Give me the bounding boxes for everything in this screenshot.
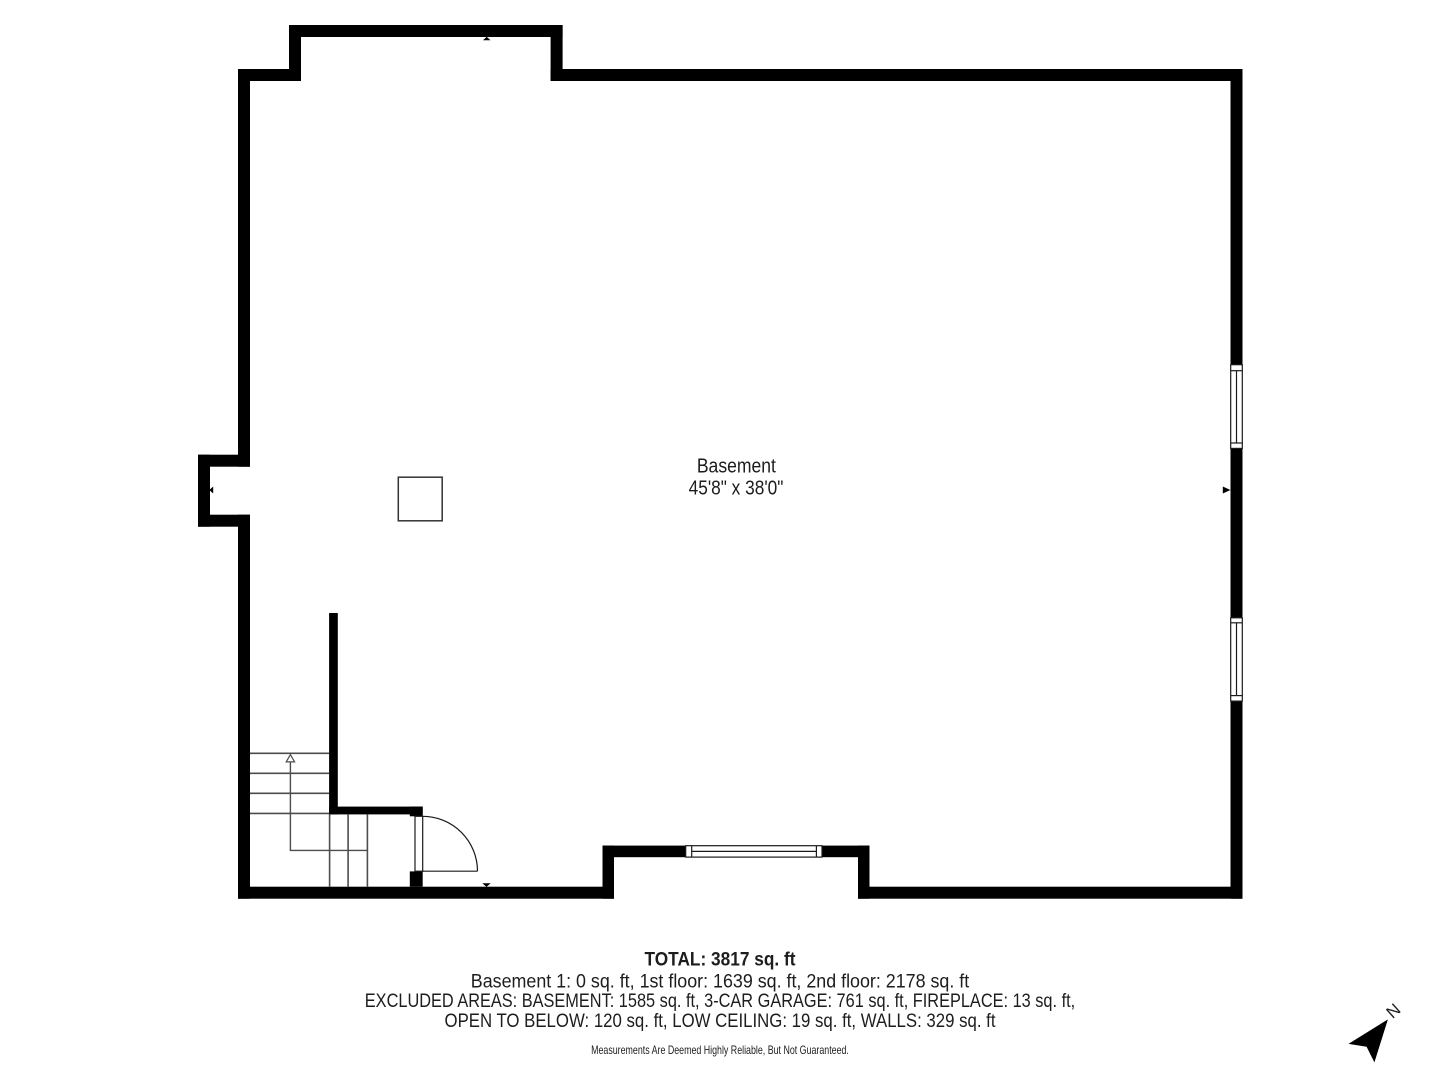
- svg-text:OPEN TO BELOW: 120 sq. ft, LOW: OPEN TO BELOW: 120 sq. ft, LOW CEILING: …: [445, 1010, 996, 1032]
- svg-text:Measurements Are Deemed Highly: Measurements Are Deemed Highly Reliable,…: [591, 1043, 849, 1057]
- svg-text:45'8" x 38'0": 45'8" x 38'0": [689, 478, 784, 500]
- svg-text:N: N: [1383, 1000, 1405, 1022]
- svg-text:EXCLUDED AREAS: BASEMENT: 1585: EXCLUDED AREAS: BASEMENT: 1585 sq. ft, 3…: [365, 990, 1075, 1012]
- svg-text:Basement 1: 0 sq. ft, 1st floo: Basement 1: 0 sq. ft, 1st floor: 1639 sq…: [471, 970, 970, 992]
- svg-text:Basement: Basement: [697, 456, 776, 478]
- svg-text:TOTAL: 3817 sq. ft: TOTAL: 3817 sq. ft: [645, 948, 796, 970]
